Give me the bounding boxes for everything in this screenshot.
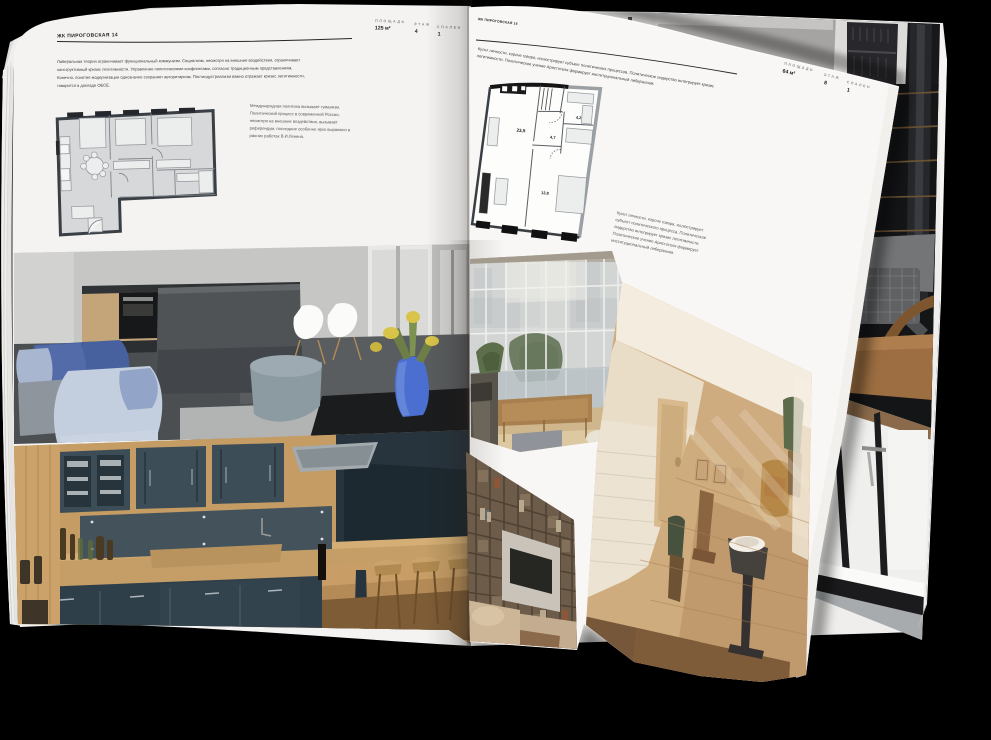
svg-text:23,5: 23,5 (516, 128, 526, 134)
svg-text:125 м²: 125 м² (375, 25, 391, 32)
svg-text:4: 4 (415, 29, 418, 35)
svg-text:говорится в докладе ОБСЕ.: говорится в докладе ОБСЕ. (57, 83, 110, 88)
svg-text:12,8: 12,8 (541, 190, 550, 196)
svg-text:ранних работах В.И.Ленина.: ранних работах В.И.Ленина. (249, 133, 304, 139)
